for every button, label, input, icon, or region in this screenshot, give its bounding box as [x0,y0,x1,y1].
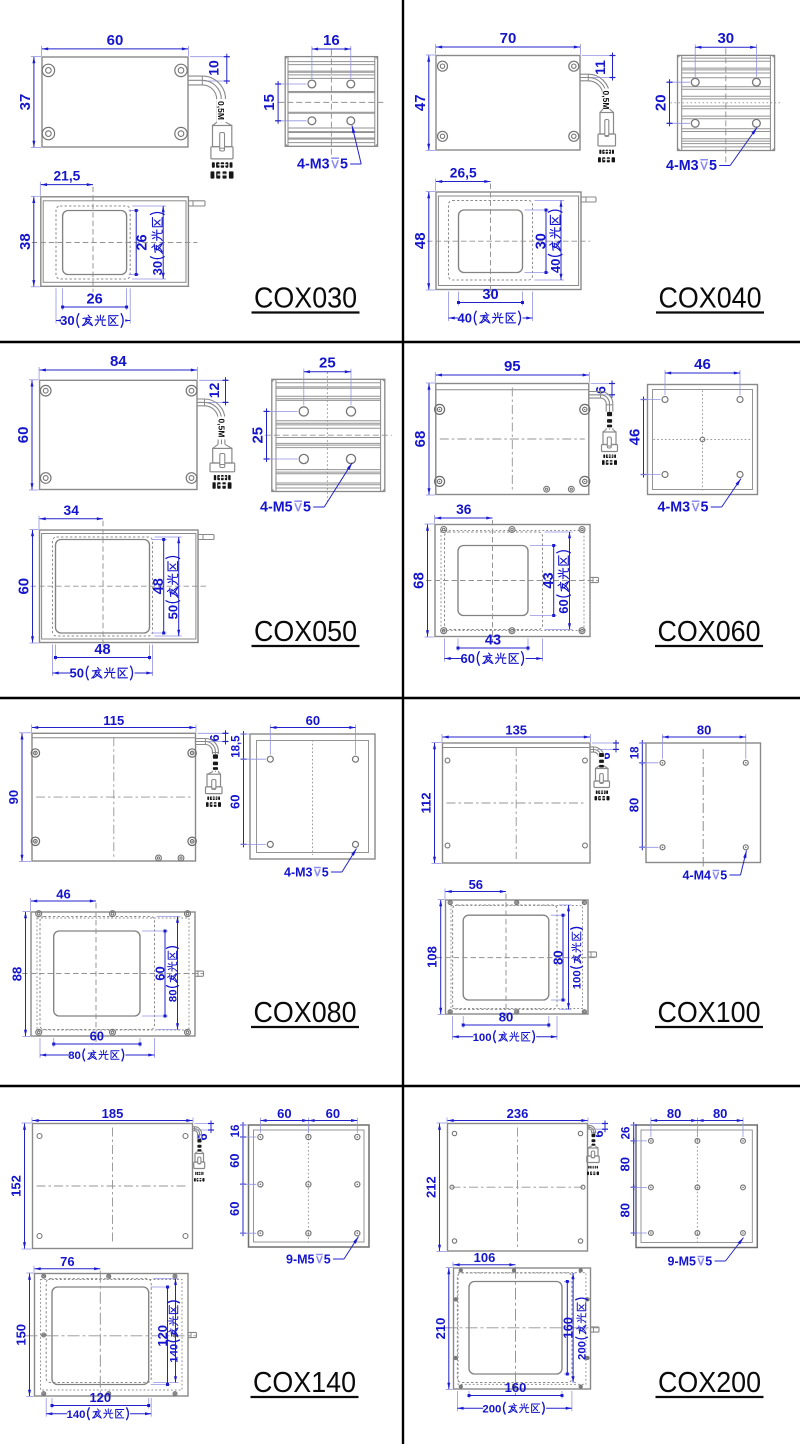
svg-text:80: 80 [667,1106,681,1121]
svg-text:5: 5 [709,158,717,174]
svg-text:90: 90 [6,790,21,804]
svg-text:80: 80 [713,1106,727,1121]
svg-text:80: 80 [68,1050,81,1062]
svg-text:50: 50 [166,605,181,619]
svg-text:120: 120 [89,1390,111,1405]
svg-text:12: 12 [206,383,222,399]
svg-text:60: 60 [556,599,571,613]
svg-text:30: 30 [482,287,498,303]
svg-text:60: 60 [16,578,33,595]
svg-text:210: 210 [433,1318,448,1340]
svg-text:60: 60 [227,1153,242,1167]
svg-text:40: 40 [548,259,563,273]
svg-text:COX200: COX200 [658,1367,761,1399]
svg-text:160: 160 [505,1380,527,1395]
svg-text:95: 95 [504,358,521,375]
svg-text:COX140: COX140 [253,1367,356,1399]
svg-text:4-M3: 4-M3 [284,866,313,880]
svg-text:115: 115 [103,713,124,728]
svg-text:15: 15 [261,94,278,111]
svg-text:60: 60 [306,713,320,728]
svg-text:COX080: COX080 [254,997,357,1029]
svg-text:60: 60 [277,1106,291,1121]
svg-text:4-M3: 4-M3 [666,158,699,174]
svg-text:60: 60 [228,795,243,809]
svg-text:9-M5: 9-M5 [286,1253,315,1267]
svg-text:68: 68 [412,431,429,448]
svg-text:20: 20 [653,94,670,111]
svg-text:4-M5: 4-M5 [260,500,293,516]
svg-text:6: 6 [207,734,222,741]
svg-text:60: 60 [90,1029,104,1044]
svg-text:112: 112 [419,793,434,814]
svg-text:108: 108 [425,946,440,968]
svg-text:5: 5 [701,500,709,516]
svg-text:30: 30 [534,233,550,249]
svg-text:COX100: COX100 [658,997,761,1029]
svg-text:38: 38 [17,233,34,250]
svg-text:0,5M: 0,5M [216,419,226,438]
svg-text:43: 43 [485,633,501,649]
svg-text:18: 18 [629,746,641,759]
svg-text:37: 37 [17,94,34,111]
svg-text:76: 76 [60,1254,74,1269]
svg-text:80: 80 [618,1157,633,1171]
svg-text:84: 84 [110,353,127,370]
svg-text:48: 48 [151,578,167,594]
svg-text:47: 47 [412,94,429,111]
svg-text:4-M3: 4-M3 [297,157,330,173]
svg-text:18,5: 18,5 [231,735,243,758]
svg-text:100: 100 [572,970,584,989]
svg-text:70: 70 [500,30,517,47]
svg-text:152: 152 [9,1175,24,1197]
svg-text:60: 60 [107,32,124,49]
svg-text:26: 26 [135,234,151,250]
svg-text:40: 40 [458,311,472,326]
svg-text:80: 80 [167,989,179,1002]
svg-text:COX040: COX040 [659,283,762,315]
svg-text:236: 236 [507,1106,529,1121]
svg-text:30: 30 [150,261,165,275]
svg-text:36: 36 [456,502,472,517]
svg-text:212: 212 [424,1176,439,1198]
svg-text:150: 150 [14,1324,29,1346]
svg-text:46: 46 [694,356,711,373]
svg-text:30: 30 [717,30,734,47]
svg-text:4-M4: 4-M4 [683,869,712,883]
svg-text:43: 43 [541,572,557,588]
svg-text:COX030: COX030 [254,283,357,315]
svg-text:80: 80 [697,723,711,738]
svg-text:120: 120 [155,1325,170,1347]
svg-text:46: 46 [627,429,644,446]
svg-text:34: 34 [64,503,80,518]
svg-text:106: 106 [474,1250,496,1265]
svg-text:80: 80 [499,1010,513,1025]
svg-text:11: 11 [592,60,608,75]
svg-text:80: 80 [626,798,641,812]
svg-text:140: 140 [67,1409,86,1421]
svg-text:26: 26 [621,1127,633,1140]
svg-text:200: 200 [482,1403,501,1415]
svg-text:25: 25 [250,427,267,444]
svg-text:200: 200 [577,1341,589,1360]
svg-text:4-M3: 4-M3 [658,500,691,516]
svg-text:100: 100 [473,1032,492,1044]
svg-text:10: 10 [206,60,222,76]
svg-text:5: 5 [322,866,329,880]
svg-text:50: 50 [70,666,84,681]
svg-text:80: 80 [618,1203,633,1217]
svg-text:5: 5 [324,1253,331,1267]
svg-text:185: 185 [102,1106,124,1121]
svg-text:140: 140 [169,1344,181,1363]
svg-text:60: 60 [153,966,168,980]
svg-text:30: 30 [60,313,74,328]
svg-text:88: 88 [10,967,25,981]
svg-text:80: 80 [551,950,566,964]
svg-text:68: 68 [411,572,428,589]
svg-text:60: 60 [326,1106,340,1121]
svg-text:9-M5: 9-M5 [668,1255,697,1269]
svg-text:60: 60 [15,427,32,444]
svg-text:5: 5 [340,157,348,173]
svg-text:135: 135 [505,723,527,738]
svg-text:48: 48 [94,642,110,658]
svg-text:48: 48 [412,232,429,249]
svg-text:5: 5 [303,500,311,516]
svg-text:16: 16 [323,32,340,49]
svg-text:5: 5 [720,869,727,883]
svg-text:COX050: COX050 [254,616,357,648]
svg-text:26,5: 26,5 [450,166,477,181]
svg-text:26: 26 [86,292,102,308]
svg-text:16: 16 [230,1125,242,1138]
svg-text:COX060: COX060 [658,616,761,648]
svg-text:5: 5 [705,1255,712,1269]
svg-text:60: 60 [461,651,475,666]
svg-text:56: 56 [469,877,483,892]
svg-text:0,5M: 0,5M [216,101,226,120]
svg-text:25: 25 [319,355,336,372]
svg-text:46: 46 [56,887,70,902]
svg-text:60: 60 [227,1202,242,1216]
svg-text:0,5M: 0,5M [601,91,611,110]
svg-text:21,5: 21,5 [53,169,80,184]
